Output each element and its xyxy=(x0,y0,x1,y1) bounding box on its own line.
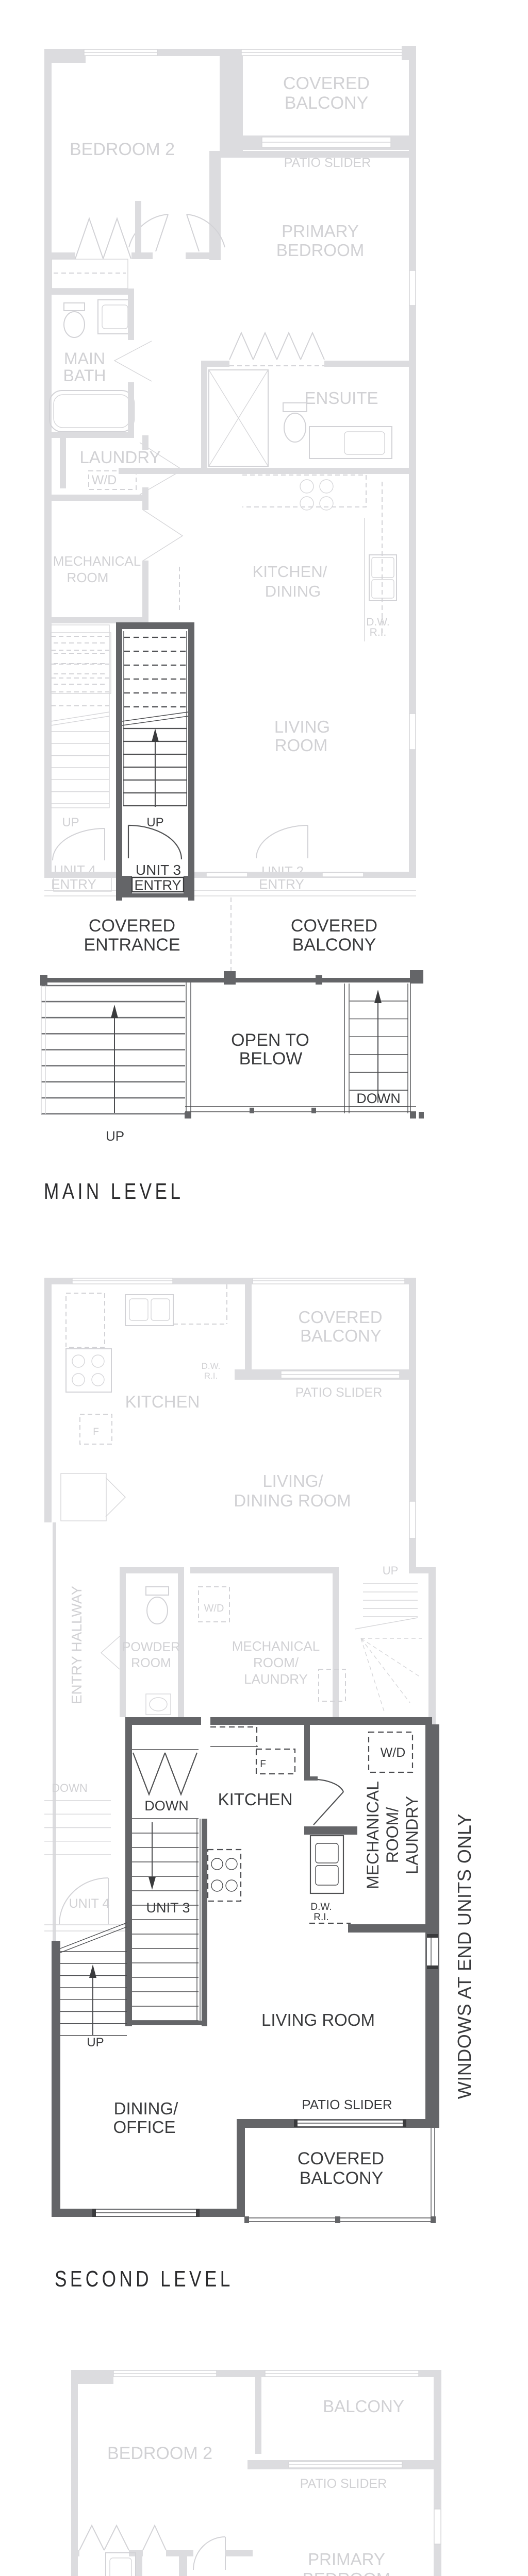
svg-text:PATIO SLIDER: PATIO SLIDER xyxy=(300,2477,387,2491)
svg-text:PRIMARY: PRIMARY xyxy=(308,2550,385,2569)
svg-text:BALCONY: BALCONY xyxy=(323,2397,404,2416)
svg-text:BEDROOM: BEDROOM xyxy=(303,2569,391,2576)
svg-text:BEDROOM 2: BEDROOM 2 xyxy=(107,2444,212,2463)
